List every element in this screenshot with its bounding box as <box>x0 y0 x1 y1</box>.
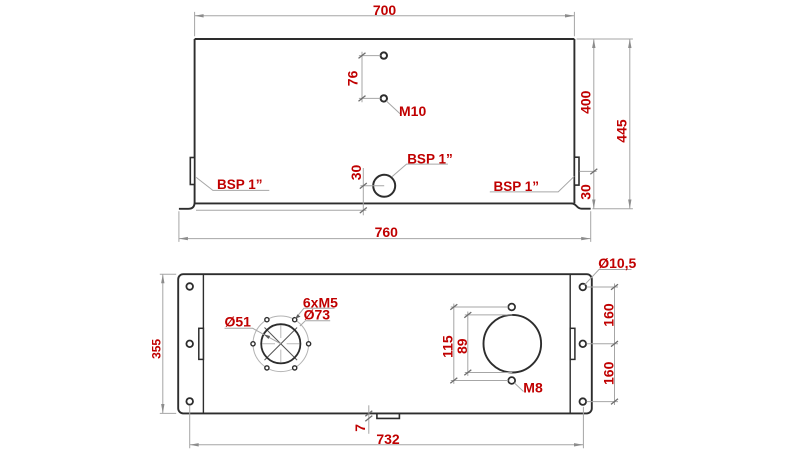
svg-text:760: 760 <box>375 224 399 240</box>
svg-text:700: 700 <box>373 2 397 18</box>
svg-text:BSP 1”: BSP 1” <box>217 177 263 192</box>
svg-text:76: 76 <box>345 70 361 86</box>
svg-text:M10: M10 <box>399 103 426 119</box>
svg-text:400: 400 <box>578 90 594 114</box>
svg-text:160: 160 <box>601 303 617 327</box>
svg-text:Ø51: Ø51 <box>225 313 252 329</box>
svg-text:BSP 1”: BSP 1” <box>494 179 540 194</box>
svg-text:BSP 1”: BSP 1” <box>407 151 453 166</box>
svg-text:M8: M8 <box>523 380 543 396</box>
svg-text:Ø73: Ø73 <box>304 307 331 323</box>
svg-text:732: 732 <box>376 431 400 447</box>
svg-text:30: 30 <box>348 165 364 181</box>
svg-text:Ø10,5: Ø10,5 <box>598 255 636 271</box>
svg-text:89: 89 <box>454 338 470 354</box>
svg-text:445: 445 <box>614 119 630 143</box>
svg-text:160: 160 <box>601 361 617 385</box>
svg-text:355: 355 <box>150 339 164 359</box>
svg-text:30: 30 <box>577 184 593 200</box>
svg-text:7: 7 <box>352 424 368 432</box>
